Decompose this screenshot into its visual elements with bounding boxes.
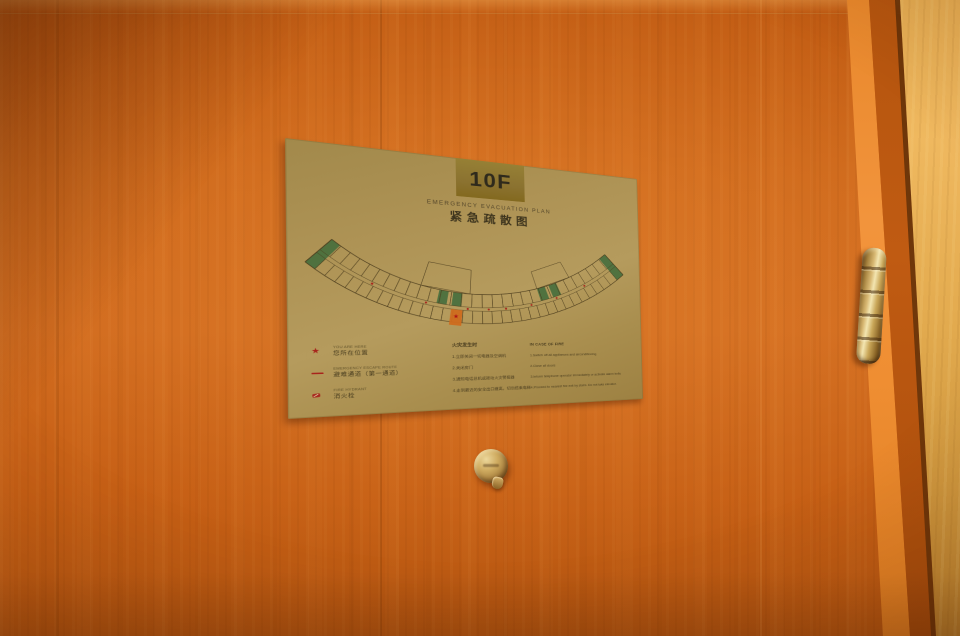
room-divider — [387, 294, 393, 306]
room-divider — [545, 303, 549, 314]
fire-hydrant-marker — [467, 308, 469, 310]
room-divider — [585, 269, 592, 279]
room-divider — [376, 290, 383, 302]
hotel-door-photo: 10F EMERGENCY EVACUATION PLAN 紧急疏散图 ★ ★ … — [0, 0, 960, 636]
legend-row: ★ YOU ARE HERE 您所在位置 — [311, 342, 402, 360]
room-divider — [553, 301, 557, 312]
door-top-sheen — [0, 0, 960, 14]
room-divider — [405, 282, 411, 295]
room-divider — [430, 306, 433, 319]
room-divider — [335, 271, 345, 282]
instructions-en: IN CASE OF FIRE 1.Switch off all applian… — [530, 338, 634, 392]
room-divider — [372, 269, 380, 282]
fire-hydrant-marker — [505, 308, 507, 310]
room-divider — [441, 308, 444, 321]
room-divider — [366, 286, 374, 298]
legend-label-zh: 消火栓 — [334, 391, 367, 400]
room-divider — [355, 281, 363, 293]
room-divider — [571, 277, 577, 288]
room-divider — [502, 294, 504, 307]
room-divider — [578, 273, 585, 284]
room-divider — [569, 295, 574, 306]
room-divider — [398, 298, 403, 310]
room-divider — [361, 264, 370, 277]
escape-route-line-icon — [311, 372, 333, 374]
room-divider — [471, 294, 472, 307]
room-divider — [340, 252, 351, 264]
legend-label-zh: 您所在位置 — [333, 348, 368, 356]
fire-hydrant-marker — [531, 304, 533, 306]
fire-hydrant-marker — [583, 285, 585, 287]
fire-hydrant-marker — [488, 309, 490, 311]
room-divider — [520, 292, 523, 305]
instructions-zh: 火灾发生时 1.立即关闭一切电器及空调机 2.关闭房门 3.通知电话总机或按动火… — [452, 339, 530, 396]
room-divider — [350, 258, 360, 270]
room-divider — [394, 278, 401, 291]
room-divider — [561, 298, 566, 309]
peephole — [474, 449, 508, 483]
room-divider — [450, 292, 453, 305]
peephole-engraving — [483, 464, 499, 467]
you-are-here-star-icon: ★ — [311, 347, 333, 355]
room-divider — [590, 284, 597, 294]
room-divider — [345, 276, 354, 288]
fire-extinguisher-icon — [312, 391, 334, 398]
hinge-knuckles — [856, 247, 887, 364]
room-divider — [419, 304, 423, 316]
room-divider — [409, 301, 414, 313]
exit-stair-marker — [436, 290, 449, 305]
room-divider — [492, 311, 493, 323]
door-hinge — [853, 247, 894, 365]
you-are-here-marker: ★ — [453, 313, 459, 319]
room-divider — [592, 264, 600, 274]
room-divider — [427, 288, 431, 301]
room-divider — [529, 290, 533, 302]
legend: ★ YOU ARE HERE 您所在位置 EMERGENCY ESCAPE RO… — [311, 342, 403, 409]
legend-row: EMERGENCY ESCAPE ROUTE 避难通道（第一通道） — [311, 363, 402, 382]
fire-hydrant-marker — [425, 301, 427, 303]
room-divider — [528, 307, 531, 319]
room-divider — [519, 309, 521, 321]
exit-stair-marker — [537, 286, 550, 301]
legend-label-zh: 避难通道（第一通道） — [333, 369, 402, 379]
fire-hydrant-marker — [371, 283, 374, 285]
floor-plan-outline — [320, 249, 614, 309]
floor-badge: 10F — [456, 158, 525, 202]
instruction-line: 4.走到最近的安全出口撤离，切勿搭乘电梯 — [453, 382, 530, 396]
wood-grain-line — [56, 0, 59, 636]
room-divider — [597, 280, 604, 289]
hinge-barrel — [856, 247, 887, 364]
room-divider — [603, 276, 610, 285]
room-divider — [492, 295, 493, 308]
elevator-lobby-outline — [420, 261, 471, 294]
room-divider — [510, 310, 512, 322]
room-divider — [537, 306, 541, 317]
wood-grain-line — [760, 0, 762, 636]
floor-plan-outline — [317, 252, 617, 313]
evacuation-sign: 10F EMERGENCY EVACUATION PLAN 紧急疏散图 ★ ★ … — [285, 138, 643, 419]
floor-plan-outline — [332, 239, 606, 297]
room-divider — [472, 311, 473, 323]
room-divider — [324, 265, 334, 276]
fire-hydrant-marker — [556, 297, 558, 299]
room-divider — [416, 285, 421, 298]
room-divider — [501, 311, 502, 323]
legend-row: FIRE HYDRANT 消火栓 — [312, 383, 403, 403]
room-divider — [576, 292, 582, 302]
room-divider — [584, 288, 590, 298]
room-divider — [511, 293, 513, 306]
room-divider — [383, 274, 390, 287]
room-divider — [563, 280, 569, 291]
